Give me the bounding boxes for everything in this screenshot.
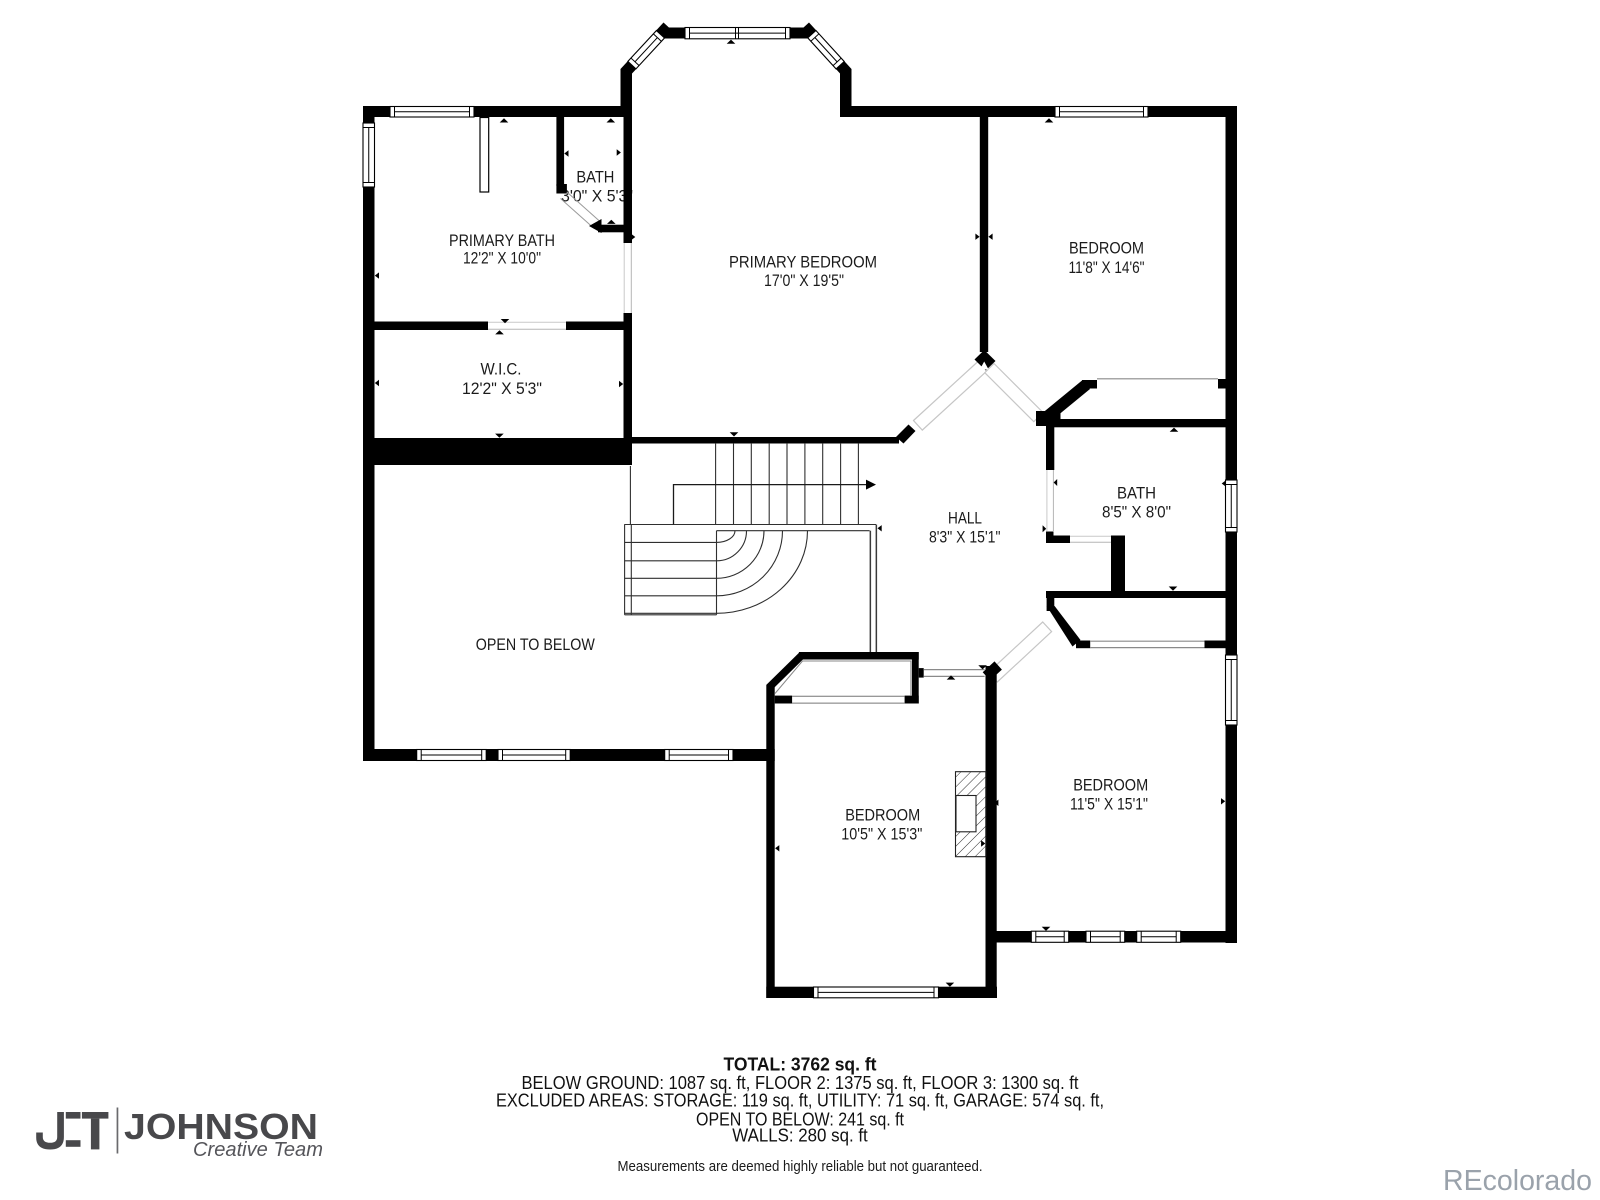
svg-text:11'5" X 15'1": 11'5" X 15'1" <box>1070 794 1148 813</box>
svg-text:OPEN TO BELOW: OPEN TO BELOW <box>476 635 595 654</box>
svg-text:BATH: BATH <box>576 167 614 186</box>
svg-text:17'0" X 19'5": 17'0" X 19'5" <box>764 271 844 290</box>
svg-text:EXCLUDED AREAS: STORAGE: 119 s: EXCLUDED AREAS: STORAGE: 119 sq. ft, UTI… <box>496 1091 1104 1111</box>
svg-text:PRIMARY BATH: PRIMARY BATH <box>449 231 555 250</box>
svg-text:BEDROOM: BEDROOM <box>845 806 920 825</box>
svg-text:W.I.C.: W.I.C. <box>481 360 522 379</box>
svg-text:BEDROOM: BEDROOM <box>1069 239 1144 258</box>
svg-text:Measurements are deemed highly: Measurements are deemed highly reliable … <box>618 1159 983 1175</box>
svg-text:11'8" X 14'6": 11'8" X 14'6" <box>1069 258 1145 277</box>
svg-text:12'2" X 10'0": 12'2" X 10'0" <box>463 249 541 268</box>
svg-text:TOTAL: 3762 sq. ft: TOTAL: 3762 sq. ft <box>724 1055 877 1075</box>
svg-text:8'5" X 8'0": 8'5" X 8'0" <box>1102 502 1171 521</box>
svg-text:10'5" X 15'3": 10'5" X 15'3" <box>841 825 922 844</box>
svg-text:8'3" X 15'1": 8'3" X 15'1" <box>929 527 1001 546</box>
svg-text:WALLS: 280 sq. ft: WALLS: 280 sq. ft <box>732 1126 868 1146</box>
svg-text:12'2" X 5'3": 12'2" X 5'3" <box>462 379 542 398</box>
svg-text:REcolorado: REcolorado <box>1443 1165 1592 1197</box>
svg-text:Creative Team: Creative Team <box>193 1139 323 1161</box>
svg-text:PRIMARY BEDROOM: PRIMARY BEDROOM <box>729 253 877 272</box>
svg-text:BATH: BATH <box>1117 483 1156 502</box>
svg-text:BEDROOM: BEDROOM <box>1073 775 1148 794</box>
svg-text:HALL: HALL <box>948 509 982 528</box>
